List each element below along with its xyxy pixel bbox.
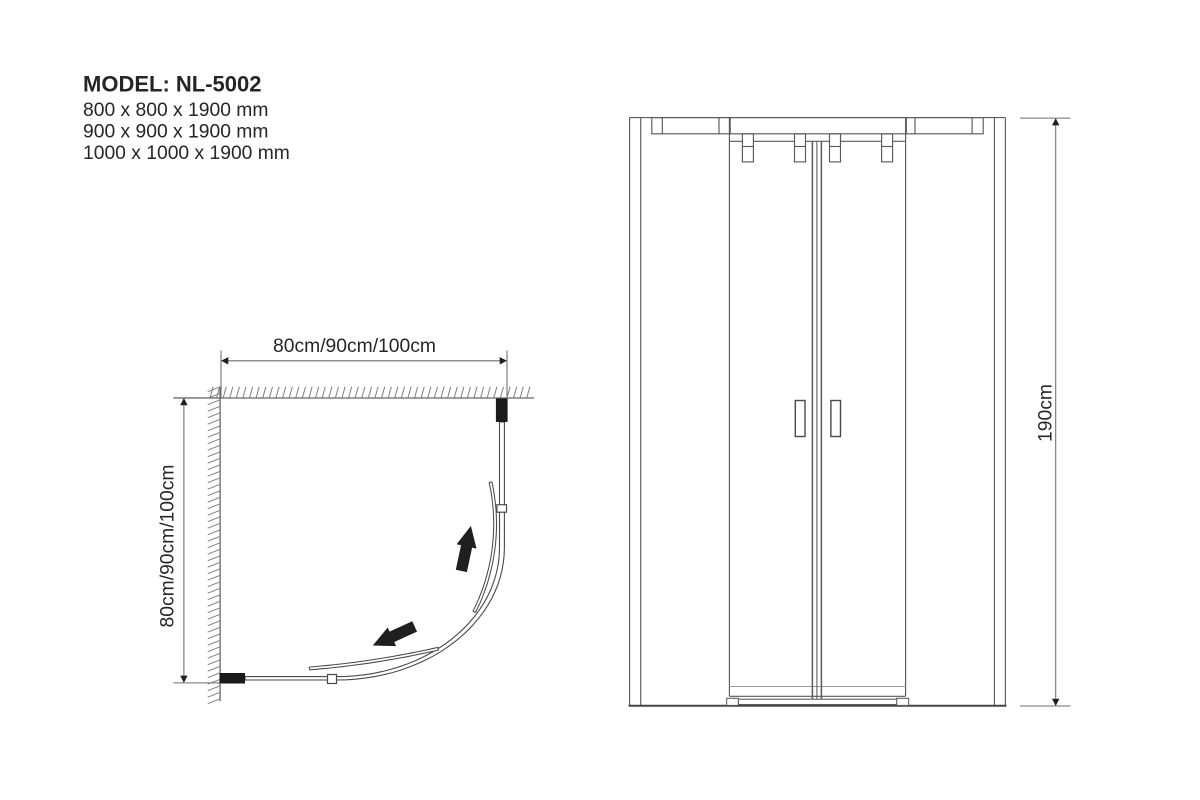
svg-text:1000 x 1000 x 1900 mm: 1000 x 1000 x 1900 mm [83, 143, 290, 164]
svg-text:900 x 900 x 1900 mm: 900 x 900 x 1900 mm [83, 121, 268, 142]
svg-text:190cm: 190cm [1036, 384, 1057, 442]
svg-text:800 x 800 x 1900 mm: 800 x 800 x 1900 mm [83, 100, 268, 121]
svg-text:80cm/90cm/100cm: 80cm/90cm/100cm [158, 465, 179, 628]
svg-text:80cm/90cm/100cm: 80cm/90cm/100cm [273, 336, 436, 357]
svg-text:MODEL: NL-5002: MODEL: NL-5002 [83, 71, 261, 96]
